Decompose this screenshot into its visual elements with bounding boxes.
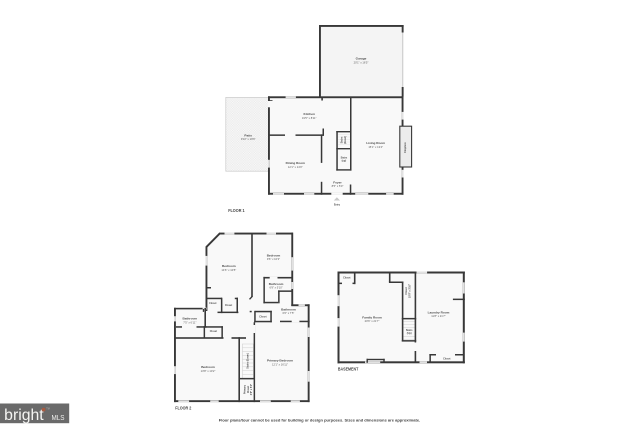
svg-text:bright: bright <box>4 407 44 424</box>
svg-text:TM: TM <box>46 408 49 411</box>
svg-text:MLS: MLS <box>52 413 65 422</box>
